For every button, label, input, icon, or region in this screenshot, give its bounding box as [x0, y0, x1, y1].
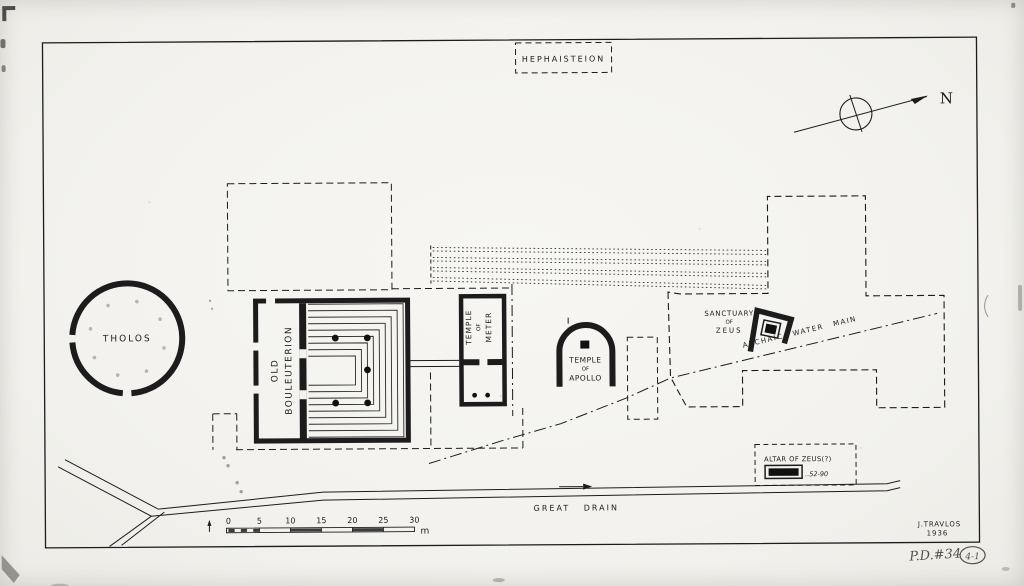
- altar-label: ALTAR OF ZEUS(?): [764, 455, 832, 463]
- apollo-statue-base: [580, 341, 589, 349]
- zeus-label-of: OF: [725, 320, 733, 326]
- meter-label-of: OF: [476, 323, 482, 331]
- meter-label-temple: TEMPLE: [464, 310, 473, 346]
- north-arrowhead-icon: [911, 95, 928, 104]
- meter-label-meter: METER: [484, 312, 493, 343]
- bouleuterion-seating-rows: [308, 304, 404, 438]
- great-drain-label: GREAT DRAIN: [534, 503, 619, 513]
- north-compass: N: [794, 89, 953, 132]
- apollo-label-apollo: APOLLO: [569, 373, 602, 382]
- bouleuterion-columns: [332, 334, 371, 406]
- scale-tick-0: 0: [226, 517, 231, 526]
- bouleuterion-label-name: BOULEUTERION: [284, 326, 295, 415]
- scanned-plan-sheet: HEPHAISTEION N THOLOS: [0, 0, 1024, 586]
- altar-pencil-note: ..52-90: [805, 470, 828, 478]
- north-label: N: [940, 89, 953, 107]
- author-name: J.TRAVLOS: [917, 520, 961, 528]
- corridor-lines: [407, 360, 459, 366]
- apollo-label-of: OF: [582, 367, 590, 373]
- credit-block: J.TRAVLOS 1936: [917, 520, 961, 537]
- zeus-label-sanctuary: SANCTUARY: [704, 310, 754, 318]
- scale-tick-30: 30: [409, 516, 419, 525]
- dashed-outline-upper-left: [227, 183, 392, 291]
- scale-unit-label: m: [420, 527, 429, 537]
- scale-bar-segments: [228, 528, 383, 532]
- tholos-building: THOLOS: [72, 283, 183, 394]
- temple-of-apollo-building: TEMPLE OF APOLLO: [559, 325, 612, 387]
- hephaisteion-label: HEPHAISTEION: [522, 54, 605, 64]
- temple-of-meter-building: TEMPLE OF METER: [461, 296, 505, 404]
- scale-tick-labels: 0 5 10 15 20 25 30: [226, 516, 420, 526]
- credit-year: 1936: [927, 529, 949, 537]
- circled-number: 4-1: [964, 552, 980, 562]
- scale-bar: 0 5 10 15 20 25 30 m: [207, 516, 429, 538]
- dotted-foundation-rows: [433, 245, 768, 291]
- scale-tick-25: 25: [378, 516, 388, 525]
- pencil-stray-mark: [985, 295, 989, 317]
- hephaisteion-box: HEPHAISTEION: [515, 42, 611, 73]
- drawing-frame: [42, 37, 979, 548]
- scale-tick-20: 20: [347, 516, 357, 525]
- zeus-label-zeus: ZEUS: [716, 327, 743, 335]
- dashed-outline-right-complex: [667, 195, 944, 409]
- site-plan-drawing: HEPHAISTEION N THOLOS: [0, 0, 1024, 586]
- altar-of-zeus-box: ALTAR OF ZEUS(?) ..52-90: [755, 444, 856, 486]
- apollo-label-temple: TEMPLE: [568, 355, 601, 364]
- water-main-label: ARCHAIC WATER MAIN: [742, 315, 858, 350]
- scale-tick-15: 15: [316, 516, 326, 525]
- dashed-line-to-meter: [392, 288, 510, 289]
- scale-tick-5: 5: [257, 517, 262, 526]
- tholos-label: THOLOS: [102, 334, 152, 344]
- boundary-dashdot-line: [512, 284, 513, 416]
- old-bouleuterion-building: OLD BOULEUTERION: [250, 295, 408, 441]
- pd-number: P.D.#34: [908, 547, 962, 565]
- scale-marker-icon: [207, 520, 211, 526]
- bouleuterion-label-old: OLD: [270, 359, 280, 383]
- scale-tick-10: 10: [285, 516, 295, 525]
